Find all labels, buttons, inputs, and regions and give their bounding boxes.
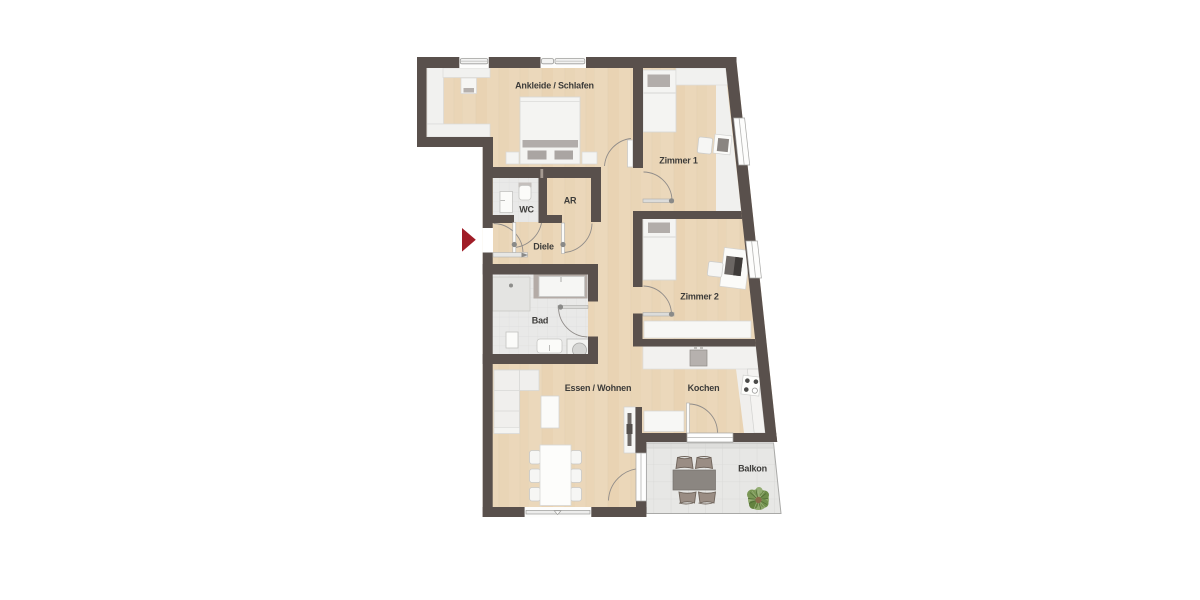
svg-text:Essen / Wohnen: Essen / Wohnen	[565, 383, 632, 393]
svg-text:WC: WC	[519, 204, 534, 214]
svg-text:Zimmer 2: Zimmer 2	[680, 292, 719, 302]
svg-text:Zimmer 1: Zimmer 1	[659, 156, 698, 166]
svg-text:Ankleide / Schlafen: Ankleide / Schlafen	[515, 81, 594, 91]
svg-text:Bad: Bad	[532, 316, 548, 326]
svg-text:Balkon: Balkon	[738, 464, 767, 474]
svg-text:AR: AR	[564, 196, 577, 206]
svg-text:Kochen: Kochen	[688, 383, 720, 393]
svg-text:Diele: Diele	[533, 242, 554, 252]
